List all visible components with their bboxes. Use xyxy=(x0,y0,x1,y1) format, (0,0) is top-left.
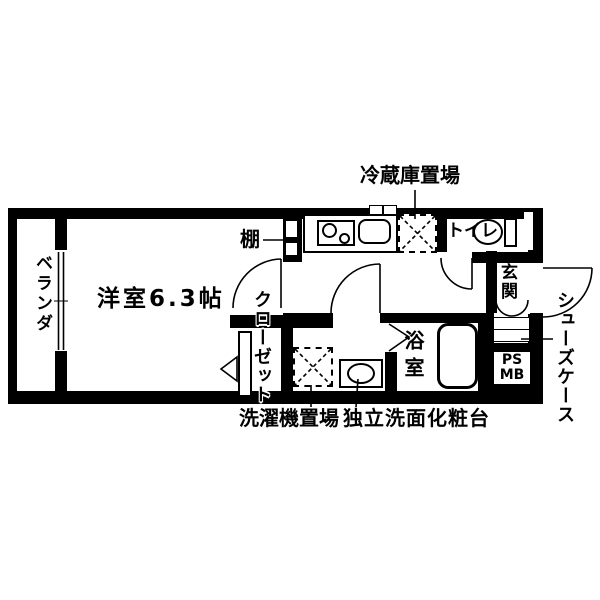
washing-machine-x-mark xyxy=(295,349,331,385)
main-room-label: 洋室6.3帖 xyxy=(97,287,225,311)
washbasin-pointer-line xyxy=(356,379,358,407)
refrigerator-x-mark xyxy=(400,216,435,251)
floorplan: 冷蔵庫置場 棚 洋室6.3帖 トイレ PS MB 洗濯機置場 独立洗面化粧台 ベ… xyxy=(0,0,600,600)
refrigerator-label: 冷蔵庫置場 xyxy=(360,165,460,186)
closet-door-triangle-icon xyxy=(221,357,237,381)
entrance-label: 玄関 xyxy=(498,263,515,301)
pipe-space-label: PS MB xyxy=(494,353,530,383)
washbasin-label: 独立洗面化粧台 xyxy=(343,408,490,429)
toilet-door-arc xyxy=(441,258,472,289)
toilet-label: トイレ xyxy=(447,223,498,241)
ps-text: PS xyxy=(502,352,522,368)
shoe-case-door-arc-right xyxy=(512,300,528,316)
shoe-case-label: シューズケース xyxy=(555,291,573,424)
shelf-label: 棚 xyxy=(240,229,260,250)
washroom-door-arc xyxy=(331,264,380,313)
shoe-case-door-arc-left xyxy=(496,300,512,316)
veranda-label: ベランダ xyxy=(33,254,50,334)
closet-label: クローゼット xyxy=(252,290,270,404)
bathroom-label: 浴室 xyxy=(403,330,423,384)
mb-text: MB xyxy=(500,367,525,383)
washing-machine-label: 洗濯機置場 xyxy=(239,408,339,429)
